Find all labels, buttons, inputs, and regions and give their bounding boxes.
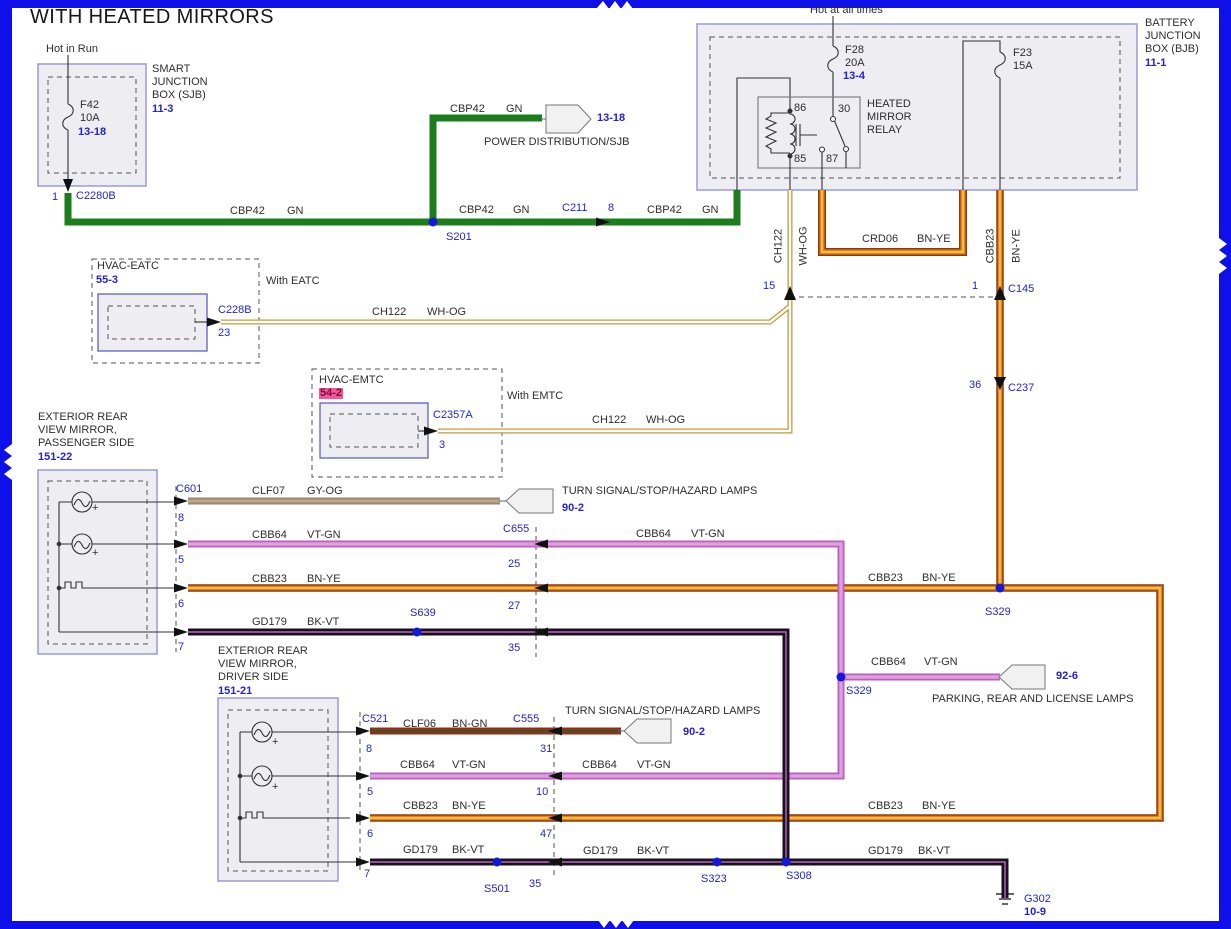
label-mirror_passenger-plus: + <box>92 548 98 559</box>
label-mirror_driver-title_lines-1: VIEW MIRROR, <box>218 659 297 670</box>
label-eatc-title: HVAC-EATC <box>97 261 159 272</box>
label-mirror_driver-pin_2: 5 <box>367 787 373 798</box>
label-turn_lamps-label: TURN SIGNAL/STOP/HAZARD LAMPS <box>565 706 760 717</box>
label-wire_cbb23-circuit: CBB23 <box>252 574 287 585</box>
label-power_dist-label: POWER DISTRIBUTION/SJB <box>484 137 629 148</box>
label-wire_ch122-color_code: WH-OG <box>799 226 810 265</box>
label-wire_cbp42-circuit: CBP42 <box>459 205 494 216</box>
label-emtc-page_ref: 54-2 <box>319 388 343 399</box>
label-wire_cbb64-circuit: CBB64 <box>871 657 906 668</box>
label-eatc-note: With EATC <box>266 276 320 287</box>
label-wire_clf07-color_code: GY-OG <box>307 486 343 497</box>
label-wire_gd179-color_code: BK-VT <box>307 617 339 628</box>
label-wire_cbb23-color_code: BN-YE <box>922 801 956 812</box>
label-wire_cbb64-circuit: CBB64 <box>400 760 435 771</box>
label-sjb-box_lines-1: JUNCTION <box>152 77 208 88</box>
label-wire_ch122-color_code: WH-OG <box>646 415 685 426</box>
label-wire_cbb23-color_code: BN-YE <box>922 573 956 584</box>
label-conn_c655-pin_2: 27 <box>508 601 520 612</box>
label-turn_lamps-page_ref: 90-2 <box>562 503 584 514</box>
label-mirror_driver-pin_1: 8 <box>366 744 372 755</box>
label-wire_cbb64-color_code: VT-GN <box>307 530 341 541</box>
label-mirror_driver-page_ref: 151-21 <box>218 686 252 697</box>
label-bjb-box_lines-1: JUNCTION <box>1145 31 1201 42</box>
label-conn_c655-pin_3: 35 <box>508 643 520 654</box>
label-sjb-fuse_name: F42 <box>80 100 99 111</box>
label-emtc-title: HVAC-EMTC <box>319 375 384 386</box>
label-mirror_driver-plus: + <box>272 737 278 748</box>
label-mirror_passenger-pin_2: 5 <box>178 555 184 566</box>
label-wire_cbp42-color_code: GN <box>513 205 530 216</box>
label-wire_cbp42-color_code: GN <box>702 205 719 216</box>
label-wire_cbb23-circuit: CBB23 <box>403 801 438 812</box>
label-wire_cbb23-color_code: BN-YE <box>307 574 341 585</box>
label-title: WITH HEATED MIRRORS <box>30 12 274 23</box>
label-bjb-relay_pin_86: 86 <box>794 103 806 114</box>
label-bjb-relay_lines-1: MIRROR <box>867 112 912 123</box>
label-mirror_driver-connector: C521 <box>362 714 388 725</box>
label-wire_cbb64-circuit: CBB64 <box>582 760 617 771</box>
label-bjb-relay_pin_85: 85 <box>794 154 806 165</box>
label-eatc-pin: 23 <box>218 328 230 339</box>
label-bjb-box_lines-2: BOX (BJB) <box>1145 44 1199 55</box>
label-splice_s639: S639 <box>410 608 436 619</box>
label-wire_crd06-color_code: BN-YE <box>917 234 951 245</box>
label-wire_cbb64-circuit: CBB64 <box>252 530 287 541</box>
label-sjb-pin: 1 <box>52 192 58 203</box>
label-mirror_driver-title_lines-0: EXTERIOR REAR <box>218 646 308 657</box>
label-mirror_driver-title_lines-2: DRIVER SIDE <box>218 672 288 683</box>
label-wire_gd179-circuit: GD179 <box>868 846 903 857</box>
label-wire_clf06-color_code: BN-GN <box>452 719 487 730</box>
label-conn_c145-name: C145 <box>1008 284 1034 295</box>
label-wire_cbb64-color_code: VT-GN <box>452 760 486 771</box>
label-splice_s501: S501 <box>484 884 510 895</box>
label-mirror_passenger-connector: C601 <box>176 484 202 495</box>
label-bjb-relay_lines-2: RELAY <box>867 125 902 136</box>
label-mirror_passenger-title_lines-2: PASSENGER SIDE <box>38 438 134 449</box>
label-wire_gd179-color_code: BK-VT <box>452 845 484 856</box>
label-sjb-fuse_ref: 13-18 <box>78 127 106 138</box>
label-bjb-fuse28_rating: 20A <box>845 58 865 69</box>
label-conn_c237-pin: 36 <box>969 380 981 391</box>
label-parking_lamps-page_ref: 92-6 <box>1056 671 1078 682</box>
label-bjb-relay_lines-0: HEATED <box>867 99 911 110</box>
label-conn_c555-pin_3: 47 <box>540 829 552 840</box>
label-wire_crd06-circuit: CRD06 <box>862 234 898 245</box>
label-wire_gd179-circuit: GD179 <box>583 846 618 857</box>
label-bjb-box_lines-0: BATTERY <box>1145 18 1195 29</box>
label-conn_c555-pin_4: 35 <box>529 879 541 890</box>
label-wire_cbb64-circuit: CBB64 <box>636 529 671 540</box>
label-mirror_driver-pin_4: 7 <box>364 869 370 880</box>
label-bjb-feed_label: Hot at all times <box>810 5 883 16</box>
label-conn_c555-name: C555 <box>513 714 539 725</box>
label-turn_lamps-label: TURN SIGNAL/STOP/HAZARD LAMPS <box>562 486 757 497</box>
label-wire_clf07-circuit: CLF07 <box>252 486 285 497</box>
label-wire_cbb64-color_code: VT-GN <box>691 529 725 540</box>
label-mirror_driver-pin_3: 6 <box>367 829 373 840</box>
label-bjb-fuse28_name: F28 <box>845 45 864 56</box>
label-sjb-page_ref: 11-3 <box>152 104 173 115</box>
label-mirror_passenger-title_lines-0: EXTERIOR REAR <box>38 412 128 423</box>
label-sjb-feed_label: Hot in Run <box>46 44 98 55</box>
label-mirror_passenger-pin_4: 7 <box>178 642 184 653</box>
label-mirror_passenger-pin_3: 6 <box>178 599 184 610</box>
label-wire_cbp42-color_code: GN <box>287 206 304 217</box>
diagram-labels: WITH HEATED MIRRORSHot in RunF4210A13-18… <box>0 0 1231 929</box>
label-wire_ch122-circuit: CH122 <box>592 415 626 426</box>
label-bjb-relay_pin_87: 87 <box>826 154 838 165</box>
label-wire_gd179-circuit: GD179 <box>252 617 287 628</box>
label-ground-name: G302 <box>1024 894 1051 905</box>
label-splice_s308: S308 <box>786 871 812 882</box>
label-bjb-fuse23_rating: 15A <box>1013 61 1033 72</box>
label-conn_c655-pin_1: 25 <box>508 559 520 570</box>
label-conn_c555-pin_1: 31 <box>540 744 552 755</box>
label-power_dist-page_ref: 13-18 <box>597 113 625 124</box>
label-mirror_driver-plus: + <box>272 782 278 793</box>
label-conn_c145-pin_left: 15 <box>763 281 775 292</box>
label-mirror_passenger-plus: + <box>92 503 98 514</box>
label-mirror_passenger-pin_1: 8 <box>178 513 184 524</box>
label-mirror_passenger-title_lines-1: VIEW MIRROR, <box>38 425 117 436</box>
label-wire_cbp42-circuit: CBP42 <box>230 206 265 217</box>
label-wire_cbp42-circuit: CBP42 <box>450 104 485 115</box>
label-bjb-fuse28_ref: 13-4 <box>843 71 865 82</box>
label-wire_cbp42-color_code: GN <box>506 104 523 115</box>
label-ground-page_ref: 10-9 <box>1024 907 1046 918</box>
label-wire_cbb23-color_code: BN-YE <box>1012 229 1023 263</box>
label-splice_s323: S323 <box>701 874 727 885</box>
label-sjb-box_lines-2: BOX (SJB) <box>152 90 206 101</box>
label-conn_c555-pin_2: 10 <box>536 787 548 798</box>
label-bjb-fuse23_name: F23 <box>1013 48 1032 59</box>
label-wire_gd179-color_code: BK-VT <box>637 846 669 857</box>
label-conn_c211-name: C211 <box>562 203 587 214</box>
label-bjb-relay_pin_30: 30 <box>838 104 850 115</box>
label-splice_s201: S201 <box>446 232 472 243</box>
label-bjb-page_ref: 11-1 <box>1145 58 1166 69</box>
label-sjb-fuse_rating: 10A <box>80 113 100 124</box>
label-conn_c655-name: C655 <box>503 524 529 535</box>
label-wire_cbb23-circuit: CBB23 <box>986 229 997 264</box>
label-conn_c145-pin_right: 1 <box>972 281 978 292</box>
label-conn_c211-pin: 8 <box>608 203 614 214</box>
label-sjb-connector: C2280B <box>76 191 116 202</box>
label-emtc-note: With EMTC <box>507 391 563 402</box>
label-emtc-pin: 3 <box>439 440 445 451</box>
label-mirror_passenger-page_ref: 151-22 <box>38 452 72 463</box>
label-wire_clf06-circuit: CLF06 <box>403 719 436 730</box>
label-splice_s329_vtgn: S329 <box>846 686 872 697</box>
label-wire_cbb23-color_code: BN-YE <box>452 801 486 812</box>
wiring-diagram-page: WITH HEATED MIRRORSHot in RunF4210A13-18… <box>0 0 1231 929</box>
label-wire_ch122-color_code: WH-OG <box>427 307 466 318</box>
label-turn_lamps-page_ref: 90-2 <box>683 727 705 738</box>
label-wire_gd179-color_code: BK-VT <box>918 846 950 857</box>
label-wire_cbp42-circuit: CBP42 <box>647 205 682 216</box>
label-wire_ch122-circuit: CH122 <box>372 307 406 318</box>
label-conn_c237-name: C237 <box>1008 383 1034 394</box>
label-wire_cbb64-color_code: VT-GN <box>924 657 958 668</box>
label-splice_s329_bnye: S329 <box>985 607 1011 618</box>
label-wire_ch122-circuit: CH122 <box>774 229 785 263</box>
label-eatc-connector: C228B <box>218 305 252 316</box>
label-wire_cbb23-circuit: CBB23 <box>868 801 903 812</box>
label-wire_gd179-circuit: GD179 <box>403 845 438 856</box>
label-emtc-connector: C2357A <box>433 410 473 421</box>
label-wire_cbb64-color_code: VT-GN <box>637 760 671 771</box>
label-eatc-page_ref: 55-3 <box>96 275 118 286</box>
label-sjb-box_lines-0: SMART <box>152 64 190 75</box>
label-wire_cbb23-circuit: CBB23 <box>868 573 903 584</box>
label-parking_lamps-label: PARKING, REAR AND LICENSE LAMPS <box>932 694 1134 705</box>
